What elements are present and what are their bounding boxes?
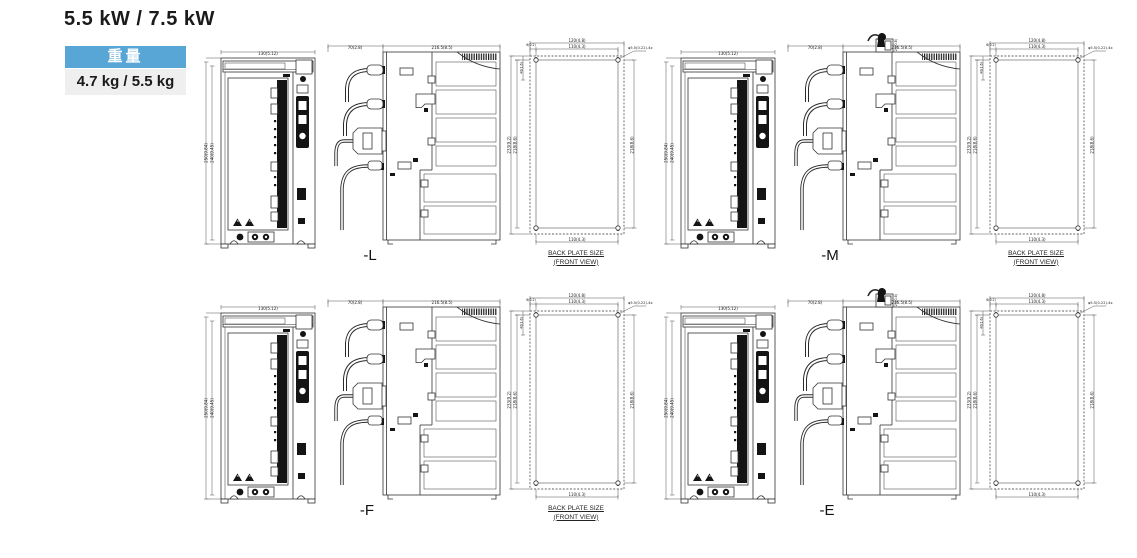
dimension-label-bp_pitch_h_r: 218(8.6) — [1090, 136, 1095, 154]
weight-badge-header: 重量 — [65, 46, 186, 68]
dimension-label-front_width: 130(5.12) — [258, 306, 278, 311]
back-plate-caption-line2: (FRONT VIEW) — [506, 514, 646, 523]
back-plate-caption-m: BACK PLATE SIZE (FRONT VIEW) — [966, 250, 1106, 267]
side-view-drawing-l: 70(2.8)216.5(8.5) — [320, 42, 505, 247]
dimension-label-bp_bottom: 110(4.3) — [568, 492, 586, 497]
dimension-label-bp_bottom: 110(4.3) — [568, 237, 586, 242]
dimension-label-bp_height: 233(9.2) — [967, 391, 972, 409]
dimension-label-bp_height: 233(9.2) — [507, 136, 512, 154]
dimension-label-bp_hole: φ5.5(0.22)-4x — [1088, 301, 1113, 305]
weight-badge-value: 4.7 kg / 5.5 kg — [65, 69, 186, 95]
dimension-label-bp_pitch_w: 110(4.3) — [568, 44, 586, 49]
group-label-e: -E — [807, 502, 847, 519]
dimension-label-side_front: 70(2.8) — [808, 45, 823, 50]
dimension-label-bp_bottom: 110(4.3) — [1028, 492, 1046, 497]
dimension-label-bp_top_small: 6(0.2) — [986, 298, 996, 302]
dimension-label-bp_left_small: 40(1.6) — [520, 62, 524, 74]
front-view-drawing-f: 130(5.12)250(9.84)240(9.45) — [203, 303, 318, 508]
dimension-label-front_height_outer: 250(9.84) — [664, 143, 669, 163]
dimension-label-bp_pitch_w: 110(4.3) — [1028, 299, 1046, 304]
dimension-label-bp_hole: φ5.5(0.22)-4x — [628, 46, 653, 50]
front-view-drawing-e: 130(5.12)250(9.84)240(9.45) — [663, 303, 778, 508]
back-plate-caption-line2: (FRONT VIEW) — [506, 259, 646, 268]
dimension-label-bp_width: 120(4.8) — [1028, 38, 1046, 43]
dimension-label-bp_left_small: 40(1.6) — [520, 317, 524, 329]
group-label-m: -M — [810, 247, 850, 264]
dimension-label-side_top_small: 20(0.8) — [894, 38, 898, 51]
back-plate-caption-f: BACK PLATE SIZE (FRONT VIEW) — [506, 505, 646, 522]
front-view-drawing-m: 130(5.12)250(9.84)240(9.45) — [663, 48, 778, 253]
dimension-label-bp_pitch_h: 218(8.6) — [513, 136, 518, 154]
back-plate-drawing-m: 120(4.8)110(4.3)6(0.2)40(1.6)233(9.2)218… — [966, 38, 1106, 250]
dimension-label-bp_bottom: 110(4.3) — [1028, 237, 1046, 242]
dimension-label-bp_height: 233(9.2) — [967, 136, 972, 154]
dimension-label-bp_top_small: 6(0.2) — [986, 43, 996, 47]
dimension-label-bp_pitch_h_r: 218(8.6) — [1090, 391, 1095, 409]
dimension-label-front_width: 130(5.12) — [718, 306, 738, 311]
dimension-label-bp_top_small: 6(0.2) — [526, 43, 536, 47]
dimension-label-bp_pitch_w: 110(4.3) — [1028, 44, 1046, 49]
back-plate-caption-line1: BACK PLATE SIZE — [506, 505, 646, 514]
side-view-drawing-m: 70(2.8)216.5(8.5)20(0.8) — [780, 42, 965, 247]
dimension-label-bp_height: 233(9.2) — [507, 391, 512, 409]
dimension-label-side_top_small: 20(0.8) — [894, 293, 898, 306]
dimension-label-front_height_inner: 240(9.45) — [670, 398, 675, 418]
dimension-label-side_front: 70(2.8) — [348, 45, 363, 50]
dimension-label-side_front: 70(2.8) — [348, 300, 363, 305]
dimension-label-bp_pitch_h: 218(8.6) — [973, 136, 978, 154]
dimension-label-bp_pitch_w: 110(4.3) — [568, 299, 586, 304]
dimension-label-bp_width: 120(4.8) — [1028, 293, 1046, 298]
dimension-label-front_height_outer: 250(9.84) — [204, 398, 209, 418]
back-plate-caption-line1: BACK PLATE SIZE — [966, 250, 1106, 259]
page-title: 5.5 kW / 7.5 kW — [64, 8, 215, 31]
dimension-label-front_height_outer: 250(9.84) — [204, 143, 209, 163]
dimension-spec-page: 5.5 kW / 7.5 kW 重量 4.7 kg / 5.5 kg 130(5… — [0, 0, 1137, 558]
dimension-label-side_front: 70(2.8) — [808, 300, 823, 305]
dimension-label-front_height_inner: 240(9.45) — [210, 143, 215, 163]
dimension-label-bp_left_small: 40(1.6) — [980, 62, 984, 74]
side-view-drawing-e: 70(2.8)216.5(8.5)20(0.8) — [780, 297, 965, 502]
dimension-label-side_body: 216.5(8.5) — [432, 45, 453, 50]
group-label-f: -F — [347, 502, 387, 519]
dimension-label-bp_width: 120(4.8) — [568, 38, 586, 43]
dimension-label-bp_pitch_h_r: 218(8.6) — [630, 391, 635, 409]
dimension-label-bp_width: 120(4.8) — [568, 293, 586, 298]
dimension-label-bp_left_small: 40(1.6) — [980, 317, 984, 329]
dimension-label-bp_pitch_h: 218(8.6) — [973, 391, 978, 409]
dimension-label-bp_hole: φ5.5(0.22)-4x — [628, 301, 653, 305]
back-plate-drawing-e: 120(4.8)110(4.3)6(0.2)40(1.6)233(9.2)218… — [966, 293, 1106, 505]
group-label-l: -L — [350, 247, 390, 264]
side-view-drawing-f: 70(2.8)216.5(8.5) — [320, 297, 505, 502]
dimension-label-bp_top_small: 6(0.2) — [526, 298, 536, 302]
front-view-drawing-l: 130(5.12)250(9.84)240(9.45) — [203, 48, 318, 253]
dimension-label-bp_hole: φ5.5(0.22)-4x — [1088, 46, 1113, 50]
dimension-label-bp_pitch_h: 218(8.6) — [513, 391, 518, 409]
weight-badge: 重量 4.7 kg / 5.5 kg — [65, 46, 186, 95]
dimension-label-front_height_outer: 250(9.84) — [664, 398, 669, 418]
back-plate-caption-line1: BACK PLATE SIZE — [506, 250, 646, 259]
dimension-label-side_body: 216.5(8.5) — [432, 300, 453, 305]
dimension-label-front_height_inner: 240(9.45) — [210, 398, 215, 418]
back-plate-caption-l: BACK PLATE SIZE (FRONT VIEW) — [506, 250, 646, 267]
dimension-label-bp_pitch_h_r: 218(8.6) — [630, 136, 635, 154]
back-plate-drawing-f: 120(4.8)110(4.3)6(0.2)40(1.6)233(9.2)218… — [506, 293, 646, 505]
dimension-label-front_width: 130(5.12) — [258, 51, 278, 56]
dimension-label-front_width: 130(5.12) — [718, 51, 738, 56]
back-plate-drawing-l: 120(4.8)110(4.3)6(0.2)40(1.6)233(9.2)218… — [506, 38, 646, 250]
back-plate-caption-line2: (FRONT VIEW) — [966, 259, 1106, 268]
dimension-label-front_height_inner: 240(9.45) — [670, 143, 675, 163]
